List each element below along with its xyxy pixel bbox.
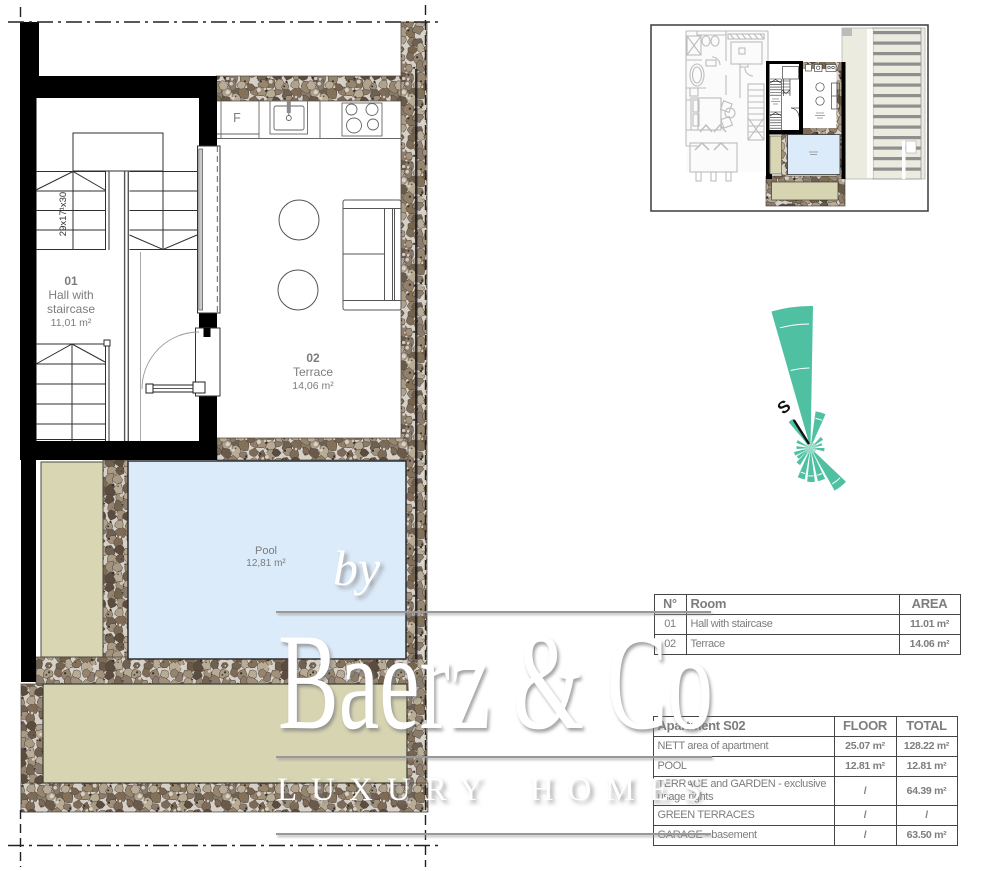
svg-text:Hall with: Hall with [48,288,93,302]
svg-text:01: 01 [64,274,78,288]
svg-text:02: 02 [306,351,320,365]
svg-text:S: S [774,396,795,418]
svg-text:F: F [233,111,241,125]
svg-text:staircase: staircase [47,302,95,316]
svg-text:29x17¹x30: 29x17¹x30 [58,192,69,236]
svg-text:Pool: Pool [255,545,277,557]
svg-text:11,01 m²: 11,01 m² [51,317,92,329]
svg-text:14,06 m²: 14,06 m² [292,380,334,392]
svg-text:12,81 m²: 12,81 m² [246,558,286,569]
svg-text:Terrace: Terrace [293,365,333,379]
